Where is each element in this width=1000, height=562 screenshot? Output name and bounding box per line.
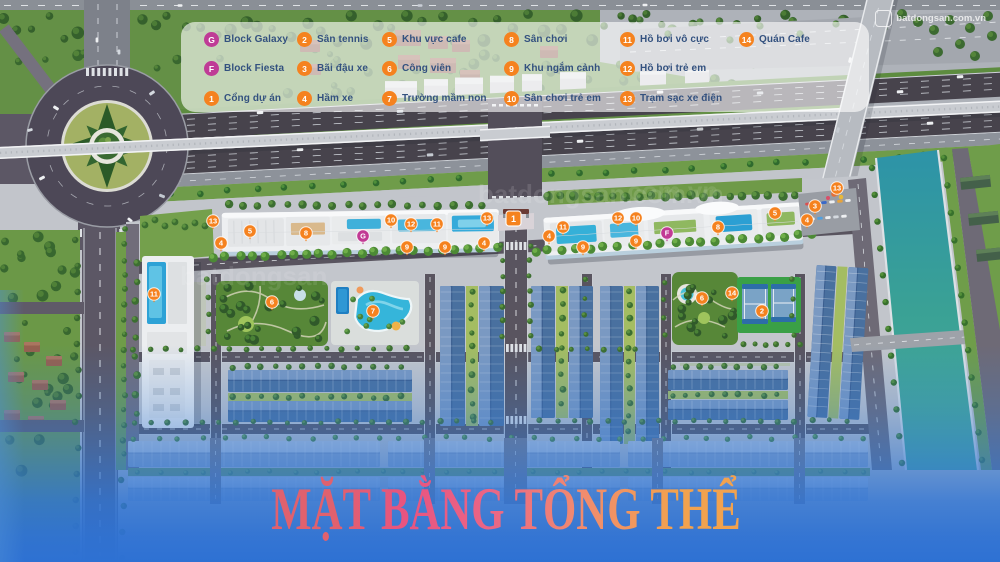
svg-text:9: 9	[405, 243, 409, 252]
svg-text:13: 13	[483, 214, 491, 223]
svg-text:1: 1	[511, 214, 516, 224]
svg-text:14: 14	[728, 289, 737, 298]
svg-text:batdongsan: batdongsan	[180, 261, 327, 291]
svg-text:13: 13	[833, 184, 841, 193]
svg-text:12: 12	[407, 220, 415, 229]
svg-text:9: 9	[443, 243, 447, 252]
svg-text:9: 9	[581, 243, 585, 252]
svg-text:G: G	[360, 232, 366, 241]
svg-text:.com.vn: .com.vn	[620, 176, 718, 206]
svg-text:6: 6	[270, 298, 274, 307]
svg-text:6: 6	[700, 294, 704, 303]
svg-text:12: 12	[614, 214, 622, 223]
svg-text:11: 11	[433, 220, 441, 229]
svg-text:11: 11	[150, 290, 158, 299]
svg-text:13: 13	[209, 217, 217, 226]
svg-text:5: 5	[248, 227, 252, 236]
svg-text:5: 5	[773, 209, 777, 218]
svg-text:3: 3	[813, 202, 817, 211]
svg-text:7: 7	[371, 307, 375, 316]
svg-text:10: 10	[632, 214, 640, 223]
svg-text:F: F	[665, 229, 670, 238]
svg-text:8: 8	[304, 229, 308, 238]
svg-text:9: 9	[634, 237, 638, 246]
svg-text:11: 11	[559, 223, 567, 232]
svg-text:10: 10	[387, 216, 395, 225]
svg-text:2: 2	[760, 307, 764, 316]
svg-text:8: 8	[716, 223, 720, 232]
